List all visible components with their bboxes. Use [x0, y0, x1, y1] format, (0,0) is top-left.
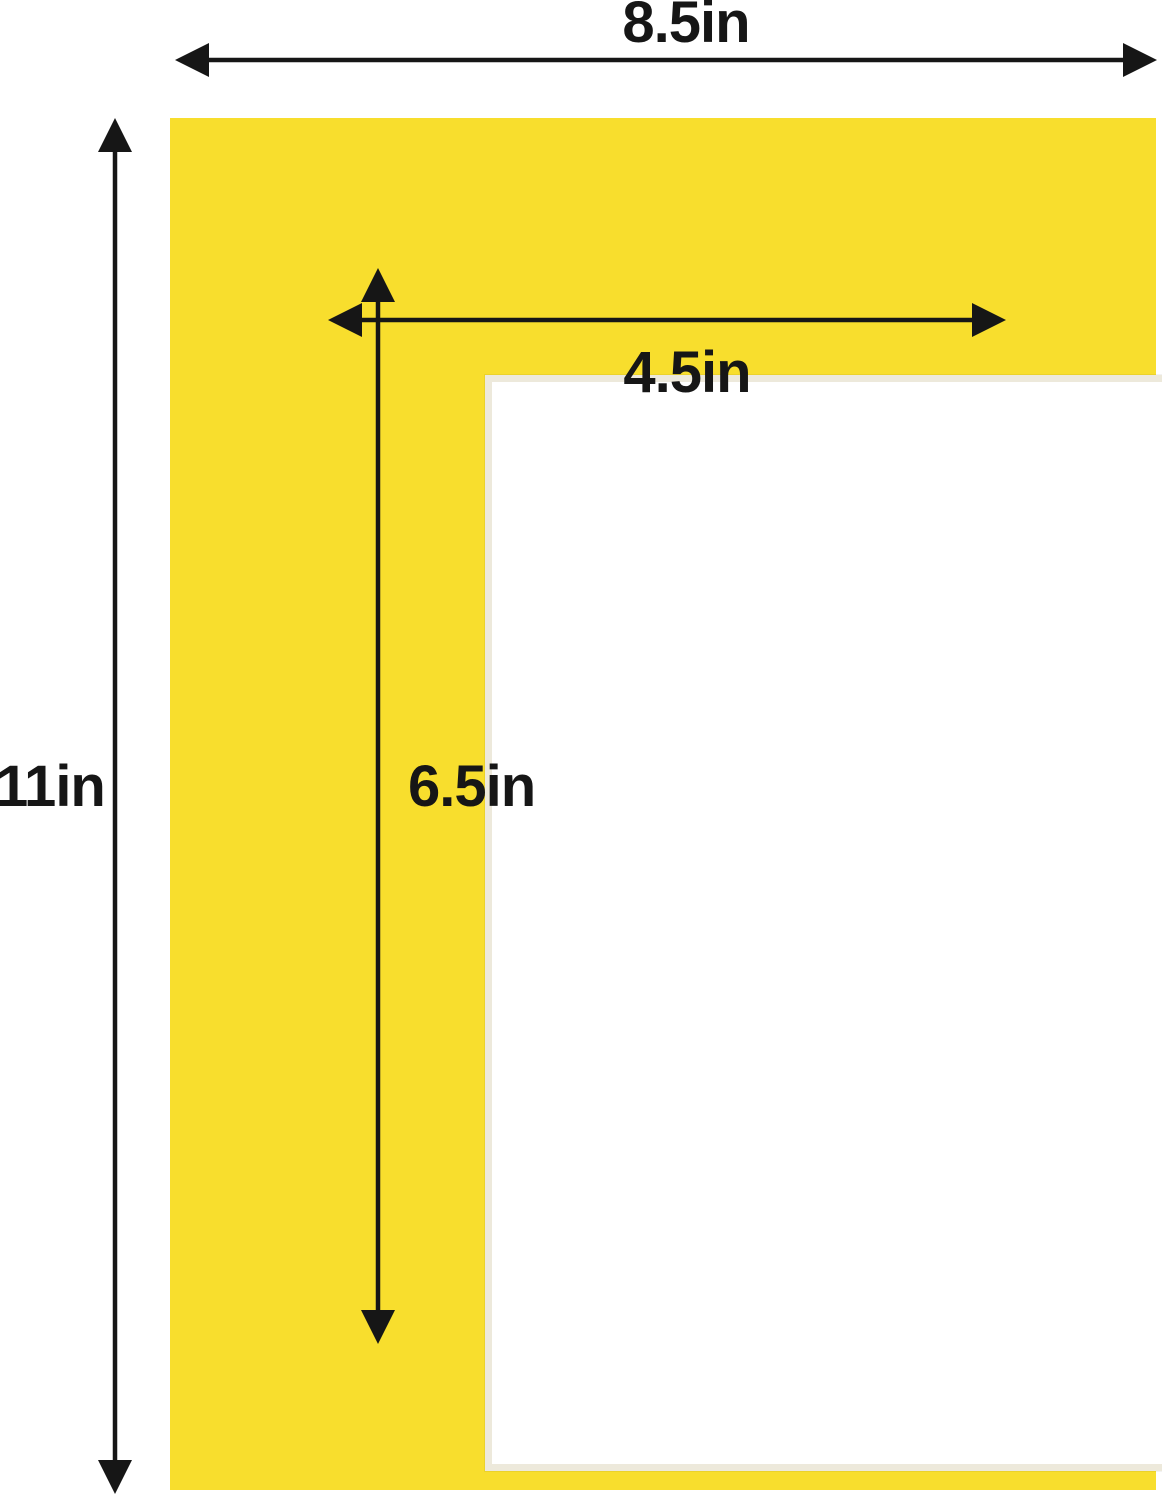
- mat-dimension-diagram: 8.5in 11in 4.5in 6.5in: [0, 0, 1162, 1500]
- mat-opening: [485, 375, 1162, 1471]
- arrowhead-up: [361, 268, 395, 302]
- opening-height-label: 6.5in: [408, 758, 535, 816]
- arrowhead-up: [98, 118, 132, 152]
- arrowhead-down: [98, 1460, 132, 1494]
- opening-height-arrow-icon: [356, 268, 400, 1344]
- opening-width-label: 4.5in: [587, 344, 787, 402]
- arrowhead-left: [175, 43, 209, 77]
- outer-width-label: 8.5in: [586, 0, 786, 52]
- arrowhead-right: [972, 303, 1006, 337]
- opening-width-arrow-icon: [328, 298, 1006, 342]
- arrowhead-down: [361, 1310, 395, 1344]
- outer-height-label: 11in: [0, 758, 98, 816]
- arrowhead-right: [1123, 43, 1157, 77]
